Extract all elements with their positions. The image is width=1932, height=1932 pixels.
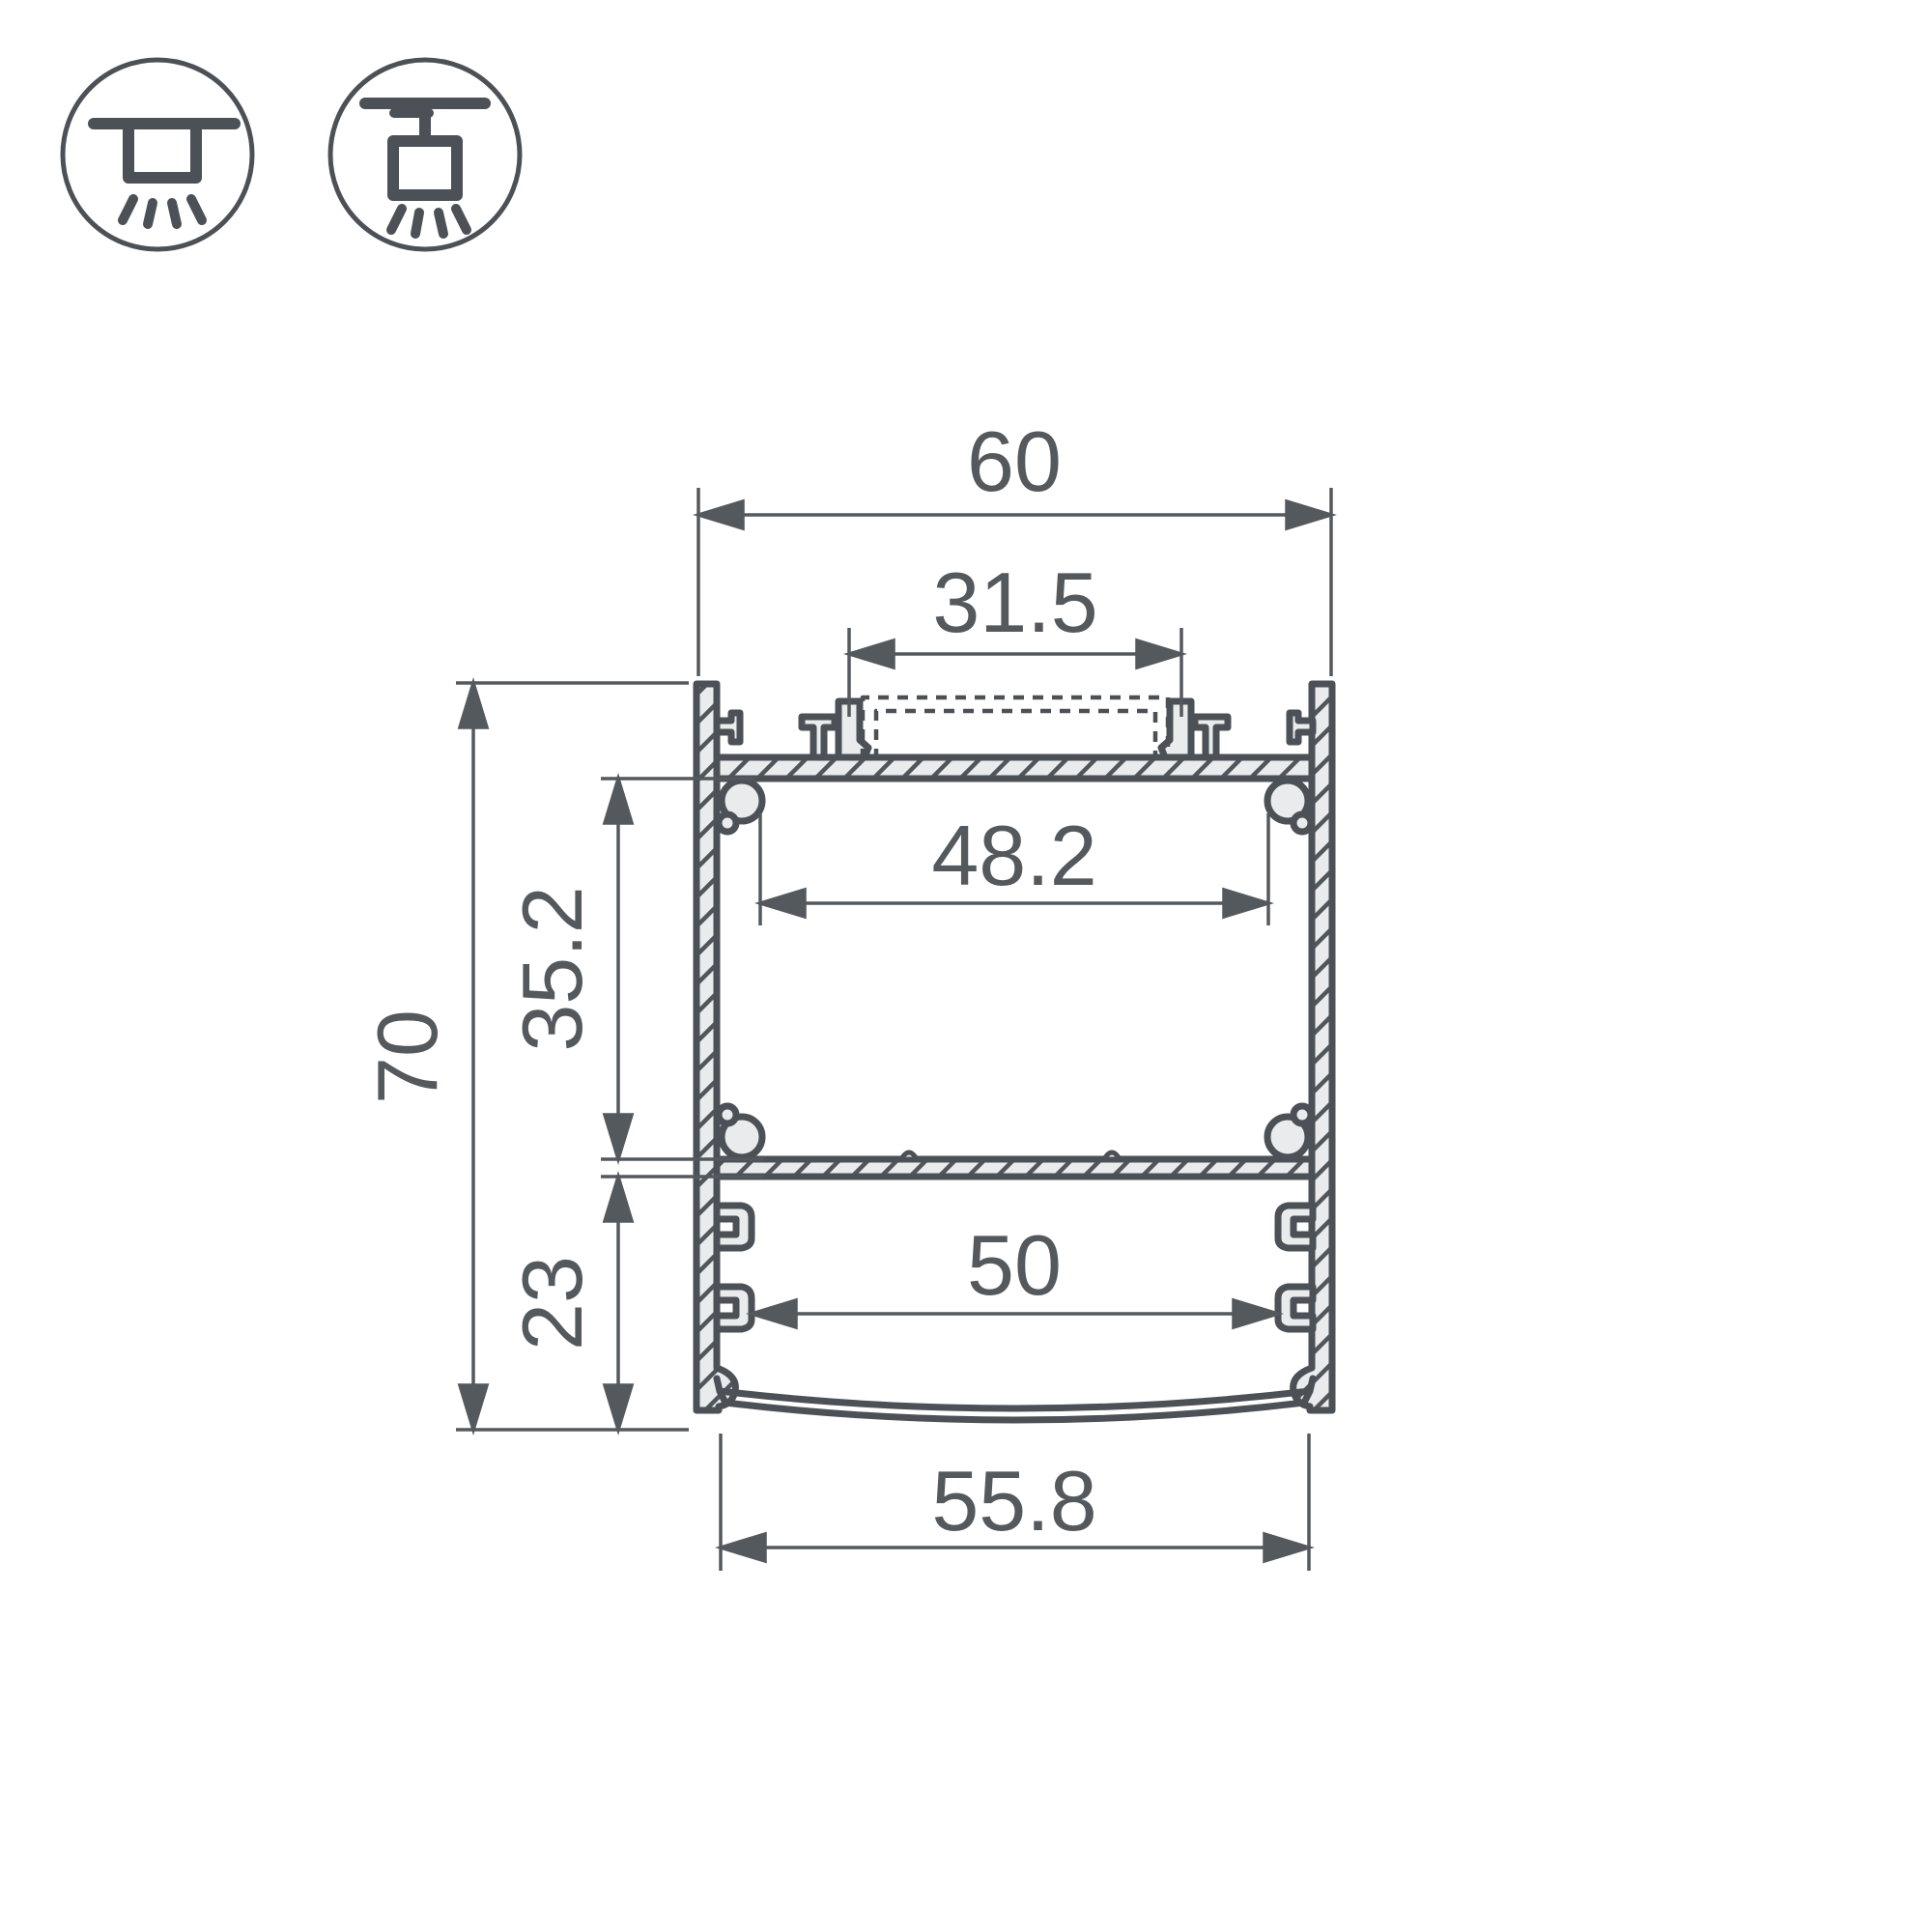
dimension-label: 35.2 [504,886,600,1051]
dimension-label: 23 [504,1256,600,1350]
cover-clip [717,1287,752,1329]
arrowhead [1287,501,1331,528]
surface-mount-icon [63,60,252,249]
arrowhead [760,890,805,917]
arrowhead [1137,640,1181,668]
cover-clip [1278,1206,1313,1248]
shelf-break-mark [901,1152,917,1159]
screw-boss-curl [1293,1106,1311,1123]
cover-clip [1278,1287,1313,1329]
arrowhead [1224,890,1268,917]
screw-boss-curl [719,814,736,832]
arrowhead [721,1534,765,1561]
dimensions: 60 31.5 48.2 50 [359,413,1331,1571]
arrowhead [605,779,632,823]
dimension-label: 48.2 [931,808,1096,903]
arrowhead [605,1385,632,1430]
arrowhead [605,1115,632,1159]
dimension-label: 70 [359,1009,455,1104]
middle-shelf [717,1159,1312,1177]
arrowhead [1234,1300,1278,1327]
top-mount-ribs [717,701,1313,757]
t-rib [802,717,835,757]
top-wall [717,757,1312,779]
cover-clip-post [1161,701,1191,757]
profile-drawing-canvas: 60 31.5 48.2 50 [0,0,1932,1932]
dimension-lower-chamber-width: 50 [752,1217,1278,1327]
arrowhead [849,640,894,668]
top-cover-phantom [863,697,1168,759]
dimension-label: 31.5 [932,554,1097,650]
dimension-label: 60 [967,413,1062,509]
shelf-break-mark [1104,1152,1120,1159]
arrowhead [698,501,743,528]
screw-boss-curl [1293,814,1311,832]
arrowhead [752,1300,796,1327]
t-rib [717,713,740,742]
bottom-diffuser [717,1378,1313,1420]
arrowhead [1264,1534,1309,1561]
dimension-bottom-width: 55.8 [721,1434,1309,1571]
pendant-mount-icon [330,60,520,249]
cover-clip [717,1206,752,1248]
dimension-top-cover-width: 31.5 [849,554,1181,717]
arrowhead [605,1177,632,1221]
screw-boss-curl [719,1106,736,1123]
t-rib [1195,717,1228,757]
dimension-label: 50 [967,1217,1062,1313]
dimension-label: 55.8 [931,1453,1096,1548]
light-rays-icon [391,209,467,234]
dimension-upper-chamber-height: 35.2 [504,779,763,1159]
light-rays-icon [123,199,202,224]
arrowhead [460,683,487,727]
arrowhead [460,1385,487,1430]
led-profile-technical-drawing: 60 31.5 48.2 50 [0,0,1932,1932]
mount-icons [63,60,520,249]
dimension-upper-chamber-width: 48.2 [760,808,1268,925]
